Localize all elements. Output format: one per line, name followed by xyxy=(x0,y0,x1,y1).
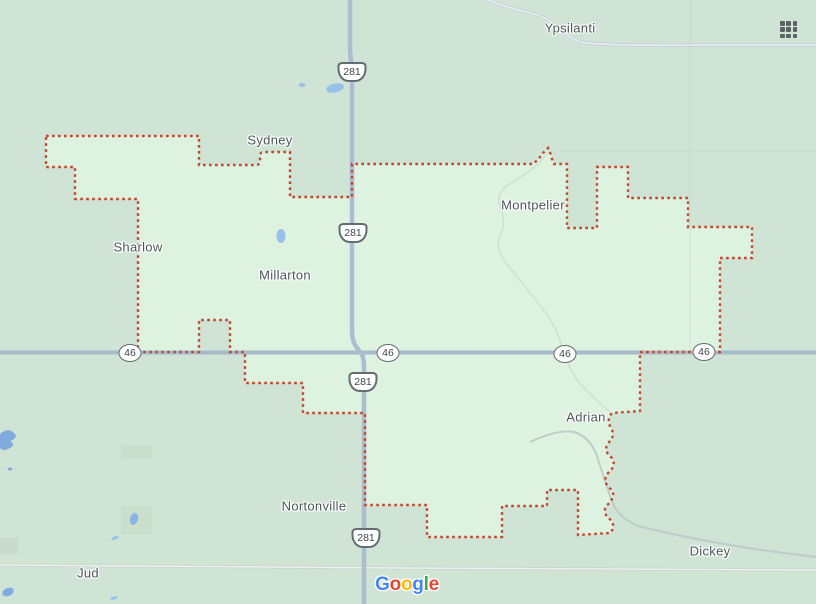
route-46-shield-right: 46 xyxy=(554,345,577,363)
google-logo-letter: o xyxy=(401,574,412,595)
google-logo-letter: e xyxy=(429,574,439,595)
route-46-shield-far-right: 46 xyxy=(693,343,716,361)
route-46-shield-left: 46 xyxy=(119,344,142,362)
us-281-shield-bottom: 281 xyxy=(352,528,381,548)
google-logo[interactable]: Google xyxy=(375,574,439,596)
google-logo-letter: g xyxy=(412,574,423,595)
map-canvas[interactable]: Ypsilanti Sydney Montpelier Sharlow Mill… xyxy=(0,0,816,604)
route-46-shield-center: 46 xyxy=(377,344,400,362)
selected-region-fill xyxy=(46,136,752,537)
us-281-shield-mid: 281 xyxy=(339,223,368,243)
minor-road-ypsilanti xyxy=(488,0,816,45)
us-281-shield-lower: 281 xyxy=(349,372,378,392)
apps-grid-icon[interactable] xyxy=(780,21,798,39)
google-logo-letter: G xyxy=(375,574,389,595)
google-logo-letter: o xyxy=(390,574,401,595)
minor-road-bottom xyxy=(0,565,816,570)
map-graphics xyxy=(0,0,816,604)
us-281-shield-top: 281 xyxy=(338,62,367,82)
terrain-patches xyxy=(0,445,152,554)
